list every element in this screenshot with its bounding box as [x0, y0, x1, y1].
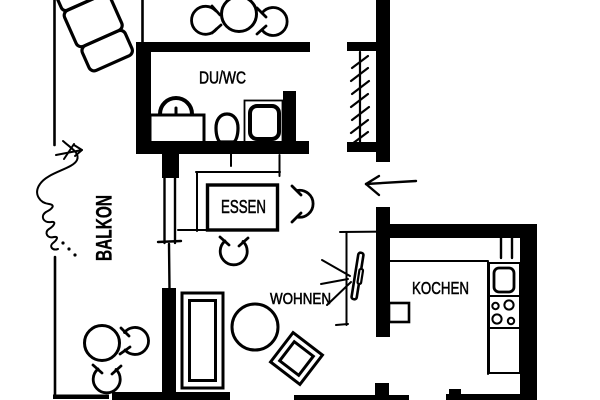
- svg-text:BALKON: BALKON: [92, 195, 117, 261]
- svg-text:KOCHEN: KOCHEN: [412, 278, 469, 298]
- svg-text:DU/WC: DU/WC: [199, 68, 246, 88]
- svg-text:ESSEN: ESSEN: [221, 196, 266, 217]
- svg-text:WOHNEN: WOHNEN: [270, 291, 331, 308]
